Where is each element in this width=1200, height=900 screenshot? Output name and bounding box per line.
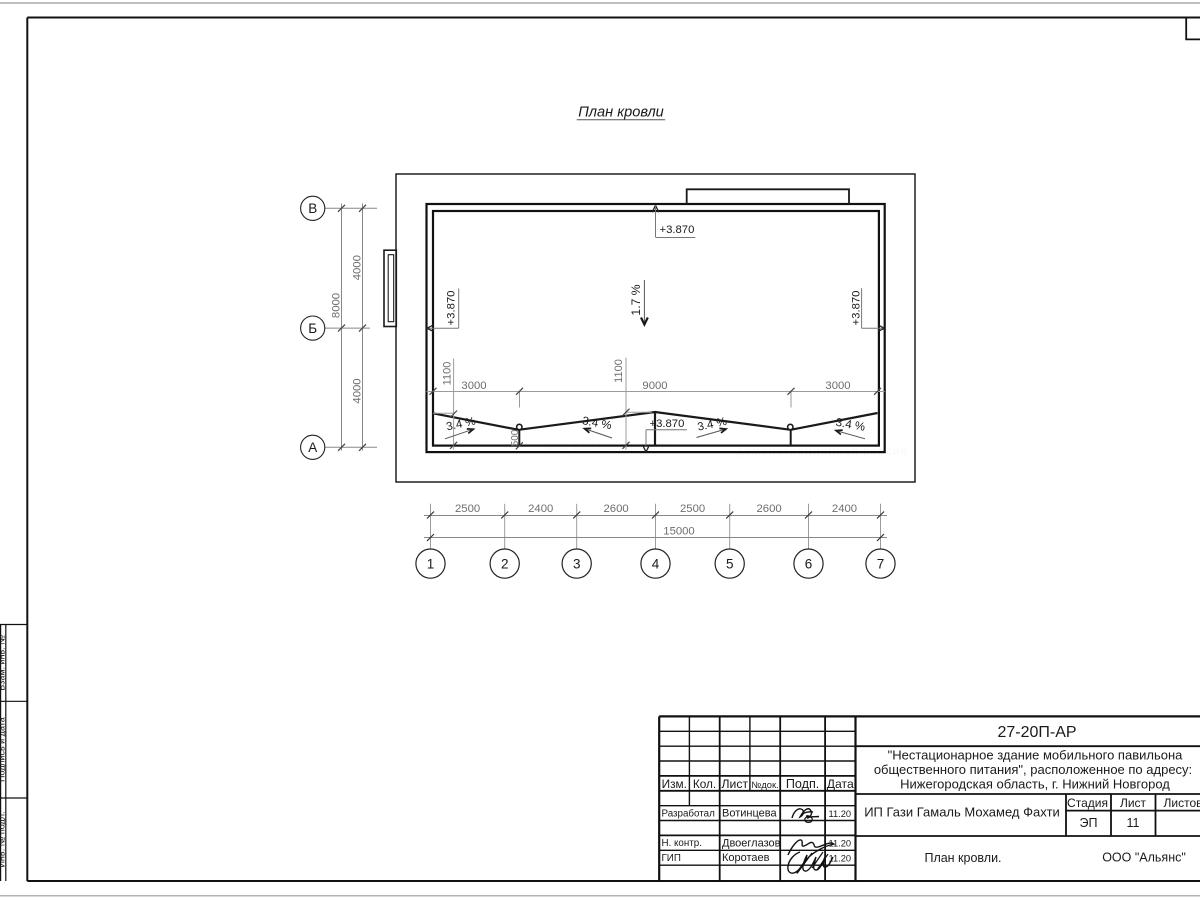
- svg-text:План кровли: План кровли: [578, 105, 664, 121]
- svg-text:7: 7: [877, 557, 885, 572]
- svg-text:2400: 2400: [528, 503, 553, 515]
- svg-text:2500: 2500: [680, 503, 705, 515]
- svg-text:27-20П-АР: 27-20П-АР: [997, 724, 1076, 741]
- svg-text:+3.870: +3.870: [446, 291, 458, 326]
- svg-text:План кровли.: План кровли.: [924, 851, 1001, 865]
- svg-text:Б: Б: [308, 321, 317, 336]
- svg-text:4000: 4000: [352, 378, 364, 403]
- svg-text:500: 500: [510, 429, 521, 446]
- svg-text:Подпись и дата: Подпись и дата: [0, 717, 6, 782]
- svg-text:Взам. инв. №: Взам. инв. №: [0, 635, 6, 691]
- svg-text:2400: 2400: [832, 503, 857, 515]
- svg-text:2600: 2600: [604, 503, 629, 515]
- svg-text:1100: 1100: [442, 362, 454, 386]
- svg-text:Двоеглазов: Двоеглазов: [722, 837, 781, 849]
- svg-text:1100: 1100: [613, 359, 625, 383]
- svg-text:В: В: [308, 201, 317, 216]
- svg-text:5: 5: [726, 557, 734, 572]
- svg-text:2600: 2600: [757, 503, 782, 515]
- svg-text:8000: 8000: [331, 293, 343, 318]
- svg-text:Стадия: Стадия: [1067, 796, 1108, 810]
- svg-text:11: 11: [1127, 816, 1140, 830]
- svg-text:2: 2: [501, 557, 509, 572]
- svg-text:демонстрационная версия: демонстрационная версия: [736, 444, 908, 458]
- svg-text:Лист: Лист: [722, 777, 749, 791]
- svg-text:А: А: [308, 440, 317, 455]
- svg-text:4000: 4000: [352, 255, 364, 280]
- svg-text:1.7 %: 1.7 %: [629, 284, 643, 315]
- svg-text:+3.870: +3.870: [660, 224, 695, 236]
- svg-text:4: 4: [652, 557, 660, 572]
- svg-text:ИП Гази Гамаль Мохамед Фахти: ИП Гази Гамаль Мохамед Фахти: [864, 805, 1060, 820]
- svg-text:Нижегородская область, г. Нижн: Нижегородская область, г. Нижний Новгоро…: [900, 777, 1170, 792]
- svg-text:общественного питания", распол: общественного питания", расположенное по…: [874, 762, 1192, 777]
- svg-text:Дата: Дата: [827, 777, 854, 791]
- svg-text:Разработал: Разработал: [662, 808, 716, 819]
- svg-text:15000: 15000: [663, 526, 694, 538]
- svg-text:Н. контр.: Н. контр.: [662, 838, 702, 849]
- svg-text:ГИП: ГИП: [662, 853, 681, 864]
- svg-text:Листов: Листов: [1164, 796, 1200, 810]
- svg-text:Инв. № подл.: Инв. № подл.: [0, 811, 6, 867]
- svg-text:+3.870: +3.870: [851, 291, 863, 326]
- svg-text:ООО "Альянс": ООО "Альянс": [1102, 850, 1186, 864]
- svg-text:Коротаев: Коротаев: [722, 852, 770, 864]
- svg-text:Кол.: Кол.: [693, 777, 716, 791]
- svg-text:№док.: №док.: [751, 780, 778, 790]
- svg-text:11.20: 11.20: [829, 809, 852, 819]
- svg-text:Вотинцева: Вотинцева: [722, 808, 777, 820]
- svg-text:9000: 9000: [642, 380, 667, 392]
- svg-text:Лист: Лист: [1120, 796, 1147, 810]
- svg-text:"Нестационарное здание мобильн: "Нестационарное здание мобильного павиль…: [888, 748, 1184, 763]
- svg-text:3000: 3000: [825, 380, 850, 392]
- svg-text:6: 6: [805, 557, 813, 572]
- svg-text:+3.870: +3.870: [650, 418, 685, 430]
- svg-text:Подп.: Подп.: [786, 777, 819, 791]
- svg-text:ЭП: ЭП: [1080, 816, 1098, 830]
- svg-text:ооо альянс проект: ооо альянс проект: [546, 439, 666, 453]
- svg-text:1: 1: [427, 557, 435, 572]
- svg-text:Изм.: Изм.: [662, 777, 687, 791]
- svg-text:3000: 3000: [461, 380, 486, 392]
- svg-text:2500: 2500: [455, 503, 480, 515]
- svg-text:3: 3: [573, 557, 581, 572]
